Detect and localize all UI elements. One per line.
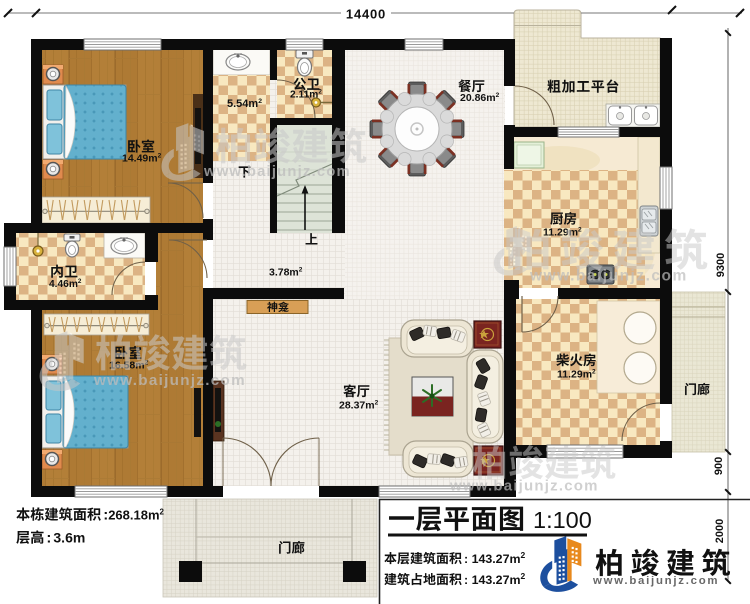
svg-text:3.6m: 3.6m [53,530,85,546]
svg-text:5.54m2: 5.54m2 [227,98,262,110]
svg-text::: : [46,530,51,547]
svg-text:11.29m2: 11.29m2 [557,369,596,381]
svg-text:1:100: 1:100 [533,507,592,533]
svg-text:: 143.27m2: : 143.27m2 [464,550,525,566]
svg-text:28.37m2: 28.37m2 [339,400,379,412]
svg-text:14400: 14400 [346,7,386,22]
svg-text:268.18m2: 268.18m2 [108,508,164,523]
svg-text:20.86m2: 20.86m2 [460,92,500,104]
svg-text:4.46m2: 4.46m2 [49,278,82,290]
svg-text:2000: 2000 [714,519,726,543]
svg-text:www.baijunjz.com: www.baijunjz.com [529,268,688,285]
svg-text:: 143.27m2: : 143.27m2 [464,571,525,587]
svg-text:3.78m2: 3.78m2 [269,267,303,279]
svg-text:www.baijunjz.com: www.baijunjz.com [449,478,599,495]
svg-text:9300: 9300 [715,253,727,277]
svg-text:14.49m2: 14.49m2 [122,153,162,165]
svg-text:www.baijunjz.com: www.baijunjz.com [203,164,351,180]
svg-text:900: 900 [713,457,725,475]
svg-text:www.baijunjz.com: www.baijunjz.com [592,575,719,587]
svg-text:www.baijunjz.com: www.baijunjz.com [93,372,246,389]
svg-text:2.11m2: 2.11m2 [290,89,322,101]
